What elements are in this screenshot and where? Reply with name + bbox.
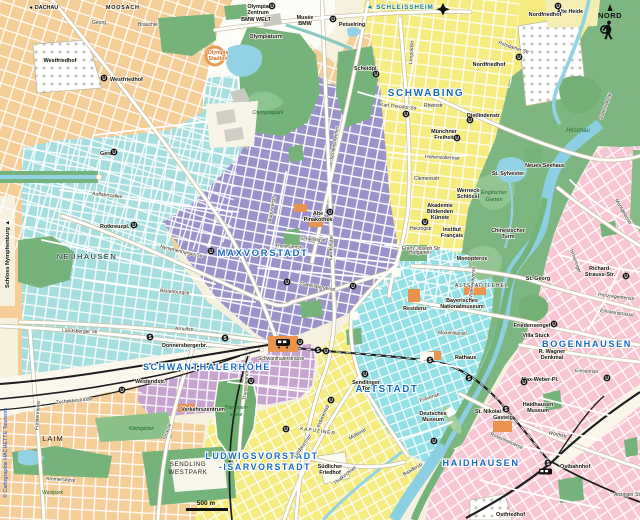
- svg-text:Villa Stuck: Villa Stuck: [522, 333, 549, 339]
- svg-text:U: U: [522, 380, 526, 386]
- svg-text:Tor: Tor: [362, 386, 371, 392]
- svg-text:Friedhof: Friedhof: [319, 470, 341, 476]
- svg-text:Westpark: Westpark: [42, 490, 64, 496]
- svg-text:St. Georg: St. Georg: [526, 276, 550, 282]
- svg-text:Rheinstr: Rheinstr: [424, 103, 443, 109]
- svg-text:SENDLING: SENDLING: [170, 461, 206, 468]
- svg-text:SCHWANTHALERHÖHE: SCHWANTHALERHÖHE: [143, 362, 271, 372]
- svg-text:U: U: [329, 398, 333, 404]
- svg-text:Residenz: Residenz: [403, 306, 427, 312]
- svg-text:Zentrum: Zentrum: [247, 10, 269, 16]
- svg-text:Museum: Museum: [422, 417, 444, 423]
- svg-text:Nordfriedhof: Nordfriedhof: [529, 12, 562, 18]
- svg-text:Clemensstr: Clemensstr: [414, 176, 440, 182]
- svg-text:U: U: [132, 223, 136, 229]
- svg-text:Kleingärten: Kleingärten: [129, 426, 155, 432]
- svg-text:Schloss Nymphenburg ▲: Schloss Nymphenburg ▲: [5, 220, 11, 288]
- svg-text:HAIDHAUSEN: HAIDHAUSEN: [442, 458, 519, 468]
- svg-text:NEUHAUSEN: NEUHAUSEN: [57, 252, 118, 261]
- svg-text:U: U: [249, 379, 253, 385]
- svg-text:Schlössl: Schlössl: [457, 194, 480, 200]
- svg-text:Garten: Garten: [485, 197, 502, 203]
- svg-text:Arnulfstr: Arnulfstr: [175, 326, 194, 333]
- svg-text:WESTPARK: WESTPARK: [168, 469, 207, 476]
- svg-text:U: U: [374, 72, 378, 78]
- svg-text:ALTSTADTLEHEL: ALTSTADTLEHEL: [455, 283, 509, 289]
- svg-text:Theresien-: Theresien-: [224, 405, 248, 411]
- svg-text:Stadion: Stadion: [208, 56, 227, 62]
- svg-text:U: U: [351, 284, 355, 290]
- svg-text:Landsberger Str: Landsberger Str: [62, 328, 98, 335]
- svg-text:Freiheit: Freiheit: [434, 135, 454, 141]
- svg-text:500 m: 500 m: [197, 500, 216, 507]
- svg-text:◄ DACHAU: ◄ DACHAU: [28, 5, 58, 11]
- svg-text:U: U: [324, 349, 328, 355]
- svg-text:MOOSACH: MOOSACH: [106, 5, 140, 11]
- svg-text:U: U: [285, 280, 289, 286]
- svg-text:Petuelring: Petuelring: [339, 22, 365, 28]
- svg-text:Nordfriedhof: Nordfriedhof: [473, 62, 506, 68]
- svg-text:U: U: [112, 150, 116, 156]
- svg-text:NORD: NORD: [598, 11, 622, 20]
- svg-text:Georg: Georg: [92, 20, 106, 26]
- svg-text:BMW WELT: BMW WELT: [241, 17, 272, 23]
- svg-text:Englischer: Englischer: [481, 190, 508, 196]
- svg-text:Westfriedhof: Westfriedhof: [110, 77, 143, 83]
- svg-text:BOGENHAUSEN: BOGENHAUSEN: [542, 339, 632, 349]
- svg-text:U: U: [120, 388, 124, 394]
- svg-text:Neues Seehaus: Neues Seehaus: [525, 163, 565, 169]
- svg-text:U: U: [423, 220, 427, 226]
- svg-text:Brauchle: Brauchle: [138, 22, 158, 28]
- svg-text:U: U: [102, 76, 106, 82]
- svg-text:U: U: [552, 322, 556, 328]
- svg-text:Olympiapark: Olympiapark: [252, 110, 285, 116]
- svg-text:Nationalmuseum: Nationalmuseum: [440, 304, 484, 310]
- svg-text:Donnersbergerbr.: Donnersbergerbr.: [162, 343, 208, 349]
- svg-text:BMW: BMW: [298, 21, 312, 27]
- svg-text:U: U: [556, 4, 560, 10]
- svg-text:U: U: [432, 439, 436, 445]
- svg-text:MAXVORSTADT: MAXVORSTADT: [218, 248, 309, 259]
- svg-text:LAIM: LAIM: [42, 434, 64, 443]
- svg-text:Anzinger Str.: Anzinger Str.: [614, 492, 640, 498]
- svg-text:Maximilianstr: Maximilianstr: [438, 330, 468, 337]
- svg-text:Herzogstr: Herzogstr: [410, 226, 432, 232]
- svg-text:U: U: [468, 118, 472, 124]
- svg-text:Hofgarten: Hofgarten: [409, 250, 431, 256]
- svg-text:Künste: Künste: [431, 215, 449, 221]
- svg-text:U: U: [284, 427, 288, 433]
- svg-text:Landshuter: Landshuter: [328, 235, 335, 261]
- svg-text:wiese: wiese: [230, 412, 243, 418]
- svg-text:SCHWABING: SCHWABING: [388, 88, 465, 99]
- svg-text:U: U: [517, 55, 521, 61]
- svg-text:Einsteinstr: Einsteinstr: [575, 368, 599, 375]
- svg-text:Gasteig: Gasteig: [493, 415, 513, 421]
- svg-text:U: U: [605, 376, 609, 382]
- svg-text:Monopteros: Monopteros: [457, 256, 488, 262]
- svg-text:◄ SCHLEISSHEIM: ◄ SCHLEISSHEIM: [366, 4, 433, 11]
- svg-text:Rathaus: Rathaus: [455, 355, 476, 361]
- svg-text:Ostfriedhof: Ostfriedhof: [496, 512, 525, 518]
- svg-text:Turm: Turm: [501, 234, 514, 240]
- svg-text:Français: Français: [441, 233, 463, 239]
- svg-text:Museum: Museum: [527, 408, 549, 414]
- svg-text:Denkmal: Denkmal: [541, 355, 564, 361]
- svg-text:-ISARVORSTADT: -ISARVORSTADT: [219, 462, 311, 472]
- svg-text:Schwanthalerstrasse: Schwanthalerstrasse: [258, 356, 305, 362]
- svg-text:St. Sylvester: St. Sylvester: [492, 171, 525, 177]
- svg-text:Pinakothek: Pinakothek: [304, 217, 333, 223]
- svg-text:Ostbahnhof: Ostbahnhof: [560, 464, 590, 470]
- svg-text:Verkehrszentrum: Verkehrszentrum: [181, 407, 225, 413]
- svg-text:Strauss-Str.: Strauss-Str.: [585, 272, 616, 278]
- svg-text:Olympiaturm: Olympiaturm: [249, 34, 282, 40]
- svg-text:U: U: [363, 372, 367, 378]
- svg-text:U: U: [328, 210, 332, 216]
- svg-text:U: U: [404, 112, 408, 118]
- svg-text:Hirschau: Hirschau: [566, 128, 590, 134]
- svg-text:U: U: [624, 274, 628, 280]
- svg-text:Westendstr.: Westendstr.: [135, 379, 166, 385]
- svg-text:U: U: [209, 249, 213, 255]
- svg-text:U: U: [298, 340, 302, 346]
- svg-text:Rotkreuzpl.: Rotkreuzpl.: [100, 224, 130, 230]
- svg-text:U: U: [270, 4, 274, 10]
- svg-text:© Cartographie HACHETTE Touris: © Cartographie HACHETTE Tourisme: [2, 408, 9, 498]
- svg-text:Friedensengel: Friedensengel: [514, 323, 551, 329]
- svg-text:Westfriedhof: Westfriedhof: [44, 58, 77, 64]
- svg-text:U: U: [331, 17, 335, 23]
- svg-text:U: U: [455, 136, 459, 142]
